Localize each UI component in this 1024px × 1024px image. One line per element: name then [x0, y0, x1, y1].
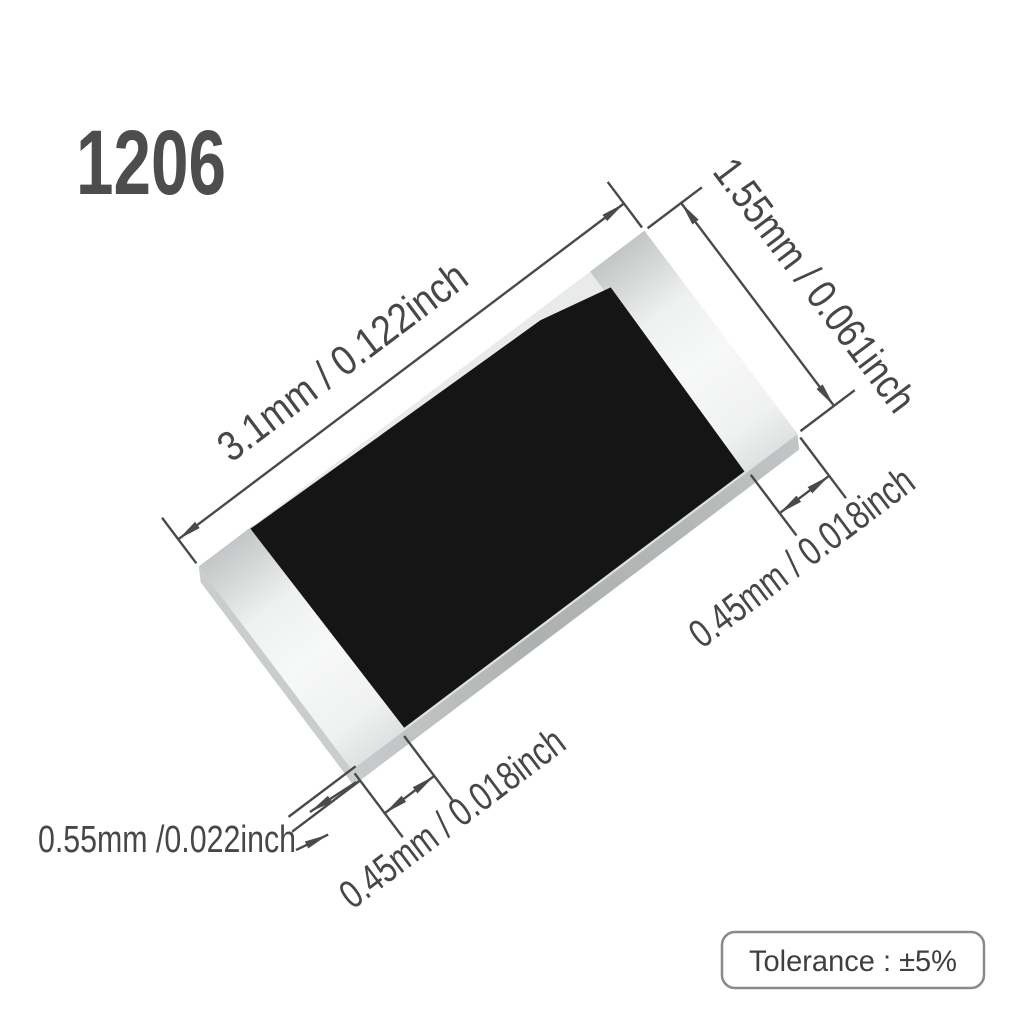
length-extension-line-right [608, 182, 642, 228]
diagram-canvas: 3.1mm / 0.122inch 1.55mm / 0.061inch 0.4… [0, 0, 1024, 1024]
right-terminal-extension-line-outer [800, 438, 846, 499]
length-extension-line-left [162, 518, 196, 564]
resistor-dimension-diagram: 3.1mm / 0.122inch 1.55mm / 0.061inch 0.4… [0, 0, 1024, 1024]
thickness-dimension-label: 0.55mm /0.022inch [38, 819, 296, 861]
bottom-terminal-dimension-line [385, 776, 435, 813]
thickness-arrow-lower [296, 829, 328, 856]
tolerance-badge: Tolerance : ±5% [722, 932, 984, 988]
tolerance-label: Tolerance : ±5% [749, 945, 957, 978]
width-extension-line-top [648, 187, 702, 228]
bottom-terminal-extension-line-inner [404, 736, 452, 800]
right-terminal-dimension-line [780, 476, 830, 513]
package-size-label: 1206 [76, 112, 226, 214]
